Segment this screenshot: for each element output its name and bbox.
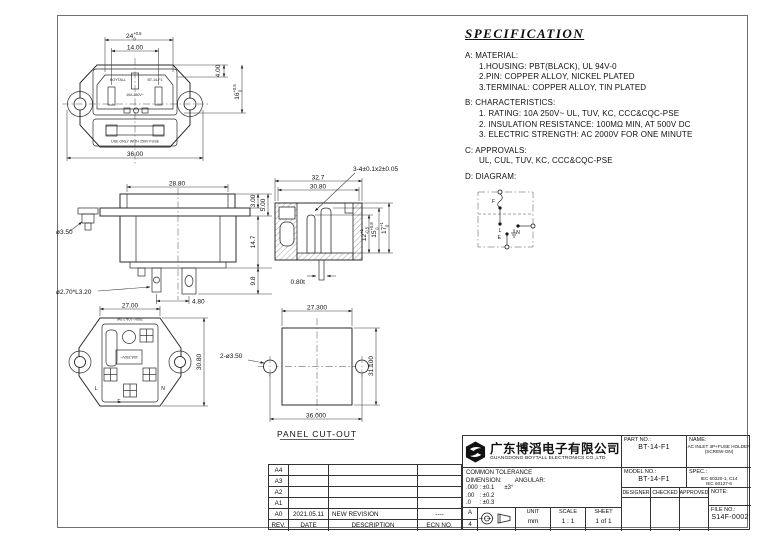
section-fuse-body bbox=[280, 222, 294, 246]
part-no-cell: PART NO.: BT-14-F1 bbox=[621, 436, 686, 468]
sheet-label: SHEET bbox=[586, 508, 621, 515]
dim-side-98: 9.8 bbox=[250, 276, 257, 285]
rear-boss bbox=[123, 331, 136, 344]
date-header: DATE bbox=[289, 520, 329, 531]
scale-value: 1 : 1 bbox=[551, 518, 585, 525]
spec-title: SPECIFICATION bbox=[465, 26, 750, 42]
dim-front-4: 4.00 bbox=[215, 64, 222, 77]
front-pin-left bbox=[108, 87, 115, 105]
tolerance-row-3: .0 : ±0.3 bbox=[466, 500, 494, 506]
part-name-line2: (SCREW-ON) bbox=[687, 449, 751, 454]
circuit-diagram: F L N E bbox=[478, 190, 535, 249]
model-no-label: MODEL NO.: bbox=[622, 468, 686, 475]
dim-rear-27: 27.00 bbox=[122, 303, 139, 310]
diagram-label-l: L bbox=[499, 228, 502, 234]
spec-b-label: B: CHARACTERISTICS: bbox=[465, 98, 750, 109]
rear-marking-mid: 10A 250V~ bbox=[120, 355, 138, 359]
ecn-cell bbox=[418, 465, 461, 475]
spec-a-item-3: 3.TERMINAL: COPPER ALLOY, TIN PLATED bbox=[465, 83, 750, 94]
front-pin-right bbox=[155, 87, 162, 105]
tolerance-row-2: .00 : ±0.2 bbox=[466, 493, 494, 499]
side-view: ø3.50 28.80 3.00 5.00 14.7 9.8 ø2.70*L3.… bbox=[56, 181, 272, 306]
rev-header: REV. bbox=[269, 520, 289, 531]
part-no-label: PART NO.: bbox=[622, 436, 686, 443]
dim-section-308: 30.80 bbox=[310, 184, 327, 191]
dim-rear-308: 30.80 bbox=[196, 353, 203, 370]
spec-b-item-2: 2. INSULATION RESISTANCE: 100MΩ MIN, AT … bbox=[465, 120, 750, 131]
rear-label-l: L bbox=[95, 386, 98, 392]
side-terminal-1-hole bbox=[154, 277, 160, 283]
designer-signature-cell bbox=[621, 498, 650, 531]
side-screw-washer bbox=[78, 208, 98, 214]
dim-front-16: 16+0.50 bbox=[232, 84, 242, 100]
sheet-value: 1 of 1 bbox=[586, 518, 621, 525]
section-terminal-tab bbox=[319, 260, 324, 280]
unit-value: mm bbox=[516, 518, 550, 525]
projection-symbol-icon bbox=[478, 508, 514, 529]
section-callout: 3-4±0.1x2±0.05 bbox=[353, 166, 398, 173]
dim-panel-36: 36.000 bbox=[306, 413, 326, 420]
revision-row-a4: A4 bbox=[269, 465, 461, 476]
sheet-size-cell: A 4 bbox=[463, 508, 477, 531]
dim-side-pin: ø2.70*L3.20 bbox=[56, 289, 92, 296]
diagram-box bbox=[478, 192, 533, 247]
revision-header-row: REV. DATE DESCRIPTION ECN NO. bbox=[269, 520, 461, 531]
side-terminal-2-hole bbox=[185, 276, 193, 287]
side-flange bbox=[100, 208, 250, 216]
side-screw-tip bbox=[85, 223, 91, 230]
side-terminal-2 bbox=[182, 268, 196, 294]
ecn-cell: ---- bbox=[418, 509, 461, 519]
spec-d-label: D: DIAGRAM: bbox=[465, 172, 750, 183]
dim-section-t: 0.80t bbox=[291, 279, 306, 286]
section-view: 3-4±0.1x2±0.05 32.7 30.80 12+1-0.5 15+0.… bbox=[275, 166, 398, 286]
date-cell bbox=[289, 498, 329, 508]
scale-cell: SCALE 1 : 1 bbox=[550, 508, 585, 531]
marking-brand: BOYTALL bbox=[110, 78, 126, 82]
projection-cell bbox=[477, 508, 515, 531]
section-pin-1 bbox=[307, 215, 315, 253]
side-screw-body bbox=[82, 214, 94, 223]
desc-cell bbox=[329, 476, 418, 486]
section-fuse-clip bbox=[279, 207, 295, 219]
fuse-cap-right bbox=[153, 125, 164, 136]
date-cell bbox=[289, 465, 329, 475]
desc-header: DESCRIPTION bbox=[329, 520, 418, 531]
side-rim bbox=[120, 194, 235, 208]
fuse-warning-label: USE ONLY WITH 250V FUSE bbox=[111, 140, 160, 144]
marking-rating: 10A 250V~ bbox=[126, 93, 144, 97]
fuse-cap-left bbox=[106, 125, 117, 136]
rev-cell: A2 bbox=[269, 487, 289, 497]
ecn-cell bbox=[418, 476, 461, 486]
spec-b-item-1: 1. RATING: 10A 250V~ UL, TUV, KC, CCC&CQ… bbox=[465, 109, 750, 120]
revision-row-a0: A0 2021.05.11 NEW REVISION ---- bbox=[269, 509, 461, 520]
rev-cell: A1 bbox=[269, 498, 289, 508]
rev-cell: A4 bbox=[269, 465, 289, 475]
desc-cell bbox=[329, 487, 418, 497]
panel-cutout-view: 2-ø3.50 27.300 31.100 36.000 PANEL CUT-O… bbox=[220, 305, 380, 440]
dim-side-hole: ø3.50 bbox=[56, 229, 73, 236]
model-no-value: BT-14-F1 bbox=[622, 476, 686, 483]
desc-cell bbox=[329, 465, 418, 475]
rear-marking-top: 250V~10A 2.5W bbox=[116, 317, 143, 321]
rev-cell: A0 bbox=[269, 509, 289, 519]
approved-signature-cell bbox=[679, 498, 708, 531]
diagram-label-e: E bbox=[498, 235, 502, 241]
tolerance-row-1: .000 : ±0.1 bbox=[466, 485, 494, 491]
rear-left-screw-hole bbox=[75, 357, 86, 368]
ecn-cell bbox=[418, 487, 461, 497]
spec-a-item-1: 1.HOUSING: PBT(BLACK), UL 94V-0 bbox=[465, 62, 750, 73]
company-name-cn: 广东博滔电子有限公司 bbox=[490, 443, 620, 456]
file-no-label: FILE NO.: bbox=[709, 506, 751, 513]
date-cell: 2021.05.11 bbox=[289, 509, 329, 519]
spec-a-item-2: 2.PIN: COPPER ALLOY, NICKEL PLATED bbox=[465, 72, 750, 83]
dim-side-147: 14.7 bbox=[250, 235, 257, 248]
diagram-n-node bbox=[531, 224, 535, 228]
designer-label: DESIGNER bbox=[622, 488, 650, 497]
dim-panel-holes: 2-ø3.50 bbox=[220, 353, 243, 360]
rev-cell: A3 bbox=[269, 476, 289, 486]
unit-label: UNIT bbox=[516, 508, 550, 515]
section-floor bbox=[297, 253, 353, 260]
ecn-cell bbox=[418, 498, 461, 508]
name-label: NAME: bbox=[687, 436, 751, 443]
dim-panel-273: 27.300 bbox=[307, 305, 327, 312]
spec-label: SPEC.: bbox=[687, 468, 751, 475]
tolerance-dim-label: DIMENSION: bbox=[466, 478, 502, 484]
tolerance-cell: COMMON TOLERANCE DIMENSION: ANGULAR: .00… bbox=[463, 468, 621, 508]
spec-b-item-3: 3. ELECTRIC STRENGTH: AC 2000V FOR ONE M… bbox=[465, 130, 750, 141]
dim-front-14: 14.00 bbox=[127, 45, 144, 52]
fuse-symbol bbox=[498, 194, 503, 208]
dim-section-15: 15+0.80 bbox=[369, 222, 379, 238]
approved-label: APPROVED bbox=[680, 488, 708, 497]
revision-row-a2: A2 bbox=[269, 487, 461, 498]
diagram-fuse-top-node bbox=[498, 190, 502, 194]
part-no-value: BT-14-F1 bbox=[622, 444, 686, 451]
date-cell bbox=[289, 476, 329, 486]
checked-signature-cell bbox=[650, 498, 679, 531]
rear-label-n: N bbox=[161, 386, 165, 392]
desc-cell bbox=[329, 498, 418, 508]
dim-section-17: 17+10 bbox=[379, 221, 389, 234]
specification-section: SPECIFICATION A: MATERIAL: 1.HOUSING: PB… bbox=[465, 26, 750, 183]
sheet-cell: SHEET 1 of 1 bbox=[585, 508, 621, 531]
unit-cell: UNIT mm bbox=[515, 508, 550, 531]
tolerance-ang-label: ANGULAR: bbox=[515, 478, 546, 484]
model-no-cell: MODEL NO.: BT-14-F1 bbox=[621, 468, 686, 488]
file-no-value: S14F-0002 bbox=[709, 514, 751, 521]
panel-cutout-title: PANEL CUT-OUT bbox=[277, 429, 357, 439]
tolerance-ang-value: ±3° bbox=[504, 485, 513, 491]
marking-model: BT-14-F1 bbox=[148, 78, 163, 82]
file-no-cell: FILE NO.: S14F-0002 bbox=[708, 506, 751, 531]
diagram-e-node bbox=[505, 245, 509, 249]
spec-c-item-1: UL, CUL, TUV, KC, CCC&CQC-PSE bbox=[465, 156, 750, 167]
checked-header-cell: CHECKED bbox=[650, 488, 679, 498]
dim-side-5: 5.00 bbox=[260, 198, 267, 211]
dim-panel-311: 31.100 bbox=[368, 356, 375, 376]
rear-view: 10A 250V~ L N E 250V~10A 2.5W 27.00 30.8… bbox=[69, 303, 208, 407]
diagram-label-f: F bbox=[492, 199, 495, 205]
revision-table: A4 A3 A2 A1 A0 2021.05.11 NEW REVISION -… bbox=[268, 464, 462, 530]
scale-label: SCALE bbox=[551, 508, 585, 515]
spec-cell: SPEC.: IEC 60320-1, C14 IEC 60127-6 bbox=[686, 468, 751, 488]
tolerance-title: COMMON TOLERANCE bbox=[466, 470, 532, 476]
company-name-en: GUANGDONG BOYTALL ELECTRONICS CO.,LTD bbox=[490, 456, 620, 461]
revision-row-a3: A3 bbox=[269, 476, 461, 487]
ecn-header: ECN NO. bbox=[418, 520, 461, 531]
front-view: BOYTALL BT-14-F1 10A 250V~ USE ONLY WITH… bbox=[62, 31, 246, 164]
dim-side-288: 28.80 bbox=[169, 181, 186, 188]
sheet-size-top: A bbox=[463, 508, 477, 520]
revision-row-a1: A1 bbox=[269, 498, 461, 509]
dim-section-327: 32.7 bbox=[312, 175, 325, 182]
dim-side-3: 3.00 bbox=[250, 194, 257, 207]
title-block: 广东博滔电子有限公司 GUANGDONG BOYTALL ELECTRONICS… bbox=[462, 435, 750, 530]
rear-fuse-channel bbox=[106, 330, 117, 366]
sheet-size-bottom: 4 bbox=[463, 520, 477, 531]
spec-line2: IEC 60127-6 bbox=[687, 481, 751, 486]
checked-label: CHECKED bbox=[651, 488, 679, 497]
spec-a-label: A: MATERIAL: bbox=[465, 51, 750, 62]
side-tab bbox=[138, 268, 145, 276]
company-logo bbox=[464, 440, 487, 464]
company-cell: 广东博滔电子有限公司 GUANGDONG BOYTALL ELECTRONICS… bbox=[463, 436, 621, 468]
name-cell: NAME: AC INLET 3P+FUSE HOLDER (SCREW-ON) bbox=[686, 436, 751, 468]
dim-front-36: 36.00 bbox=[127, 151, 144, 158]
desc-cell: NEW REVISION bbox=[329, 509, 418, 519]
designer-header-cell: DESIGNER bbox=[621, 488, 650, 498]
dim-side-48: 4.80 bbox=[192, 299, 205, 306]
spec-c-label: C: APPROVALS: bbox=[465, 146, 750, 157]
rear-right-screw-hole bbox=[175, 357, 186, 368]
date-cell bbox=[289, 487, 329, 497]
note-label: NOTE: bbox=[709, 488, 751, 495]
note-cell: NOTE: bbox=[708, 488, 751, 506]
approved-header-cell: APPROVED bbox=[679, 488, 708, 498]
